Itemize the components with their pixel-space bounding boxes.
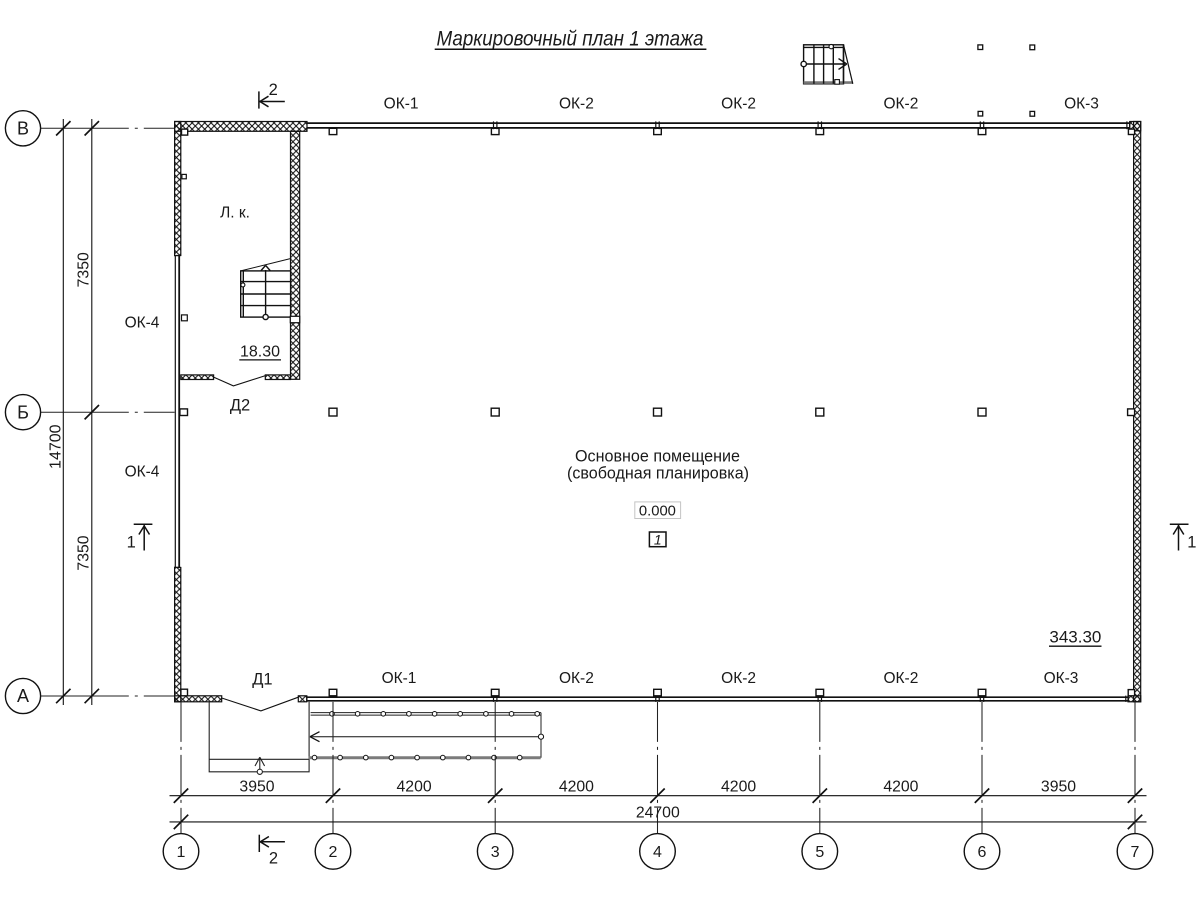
svg-text:7350: 7350 — [76, 535, 93, 570]
svg-text:4200: 4200 — [397, 778, 432, 795]
svg-text:3: 3 — [491, 844, 500, 861]
svg-text:ОК-4: ОК-4 — [125, 464, 160, 481]
svg-text:4200: 4200 — [721, 778, 756, 795]
svg-text:14700: 14700 — [48, 424, 65, 469]
svg-text:ОК-2: ОК-2 — [721, 96, 756, 113]
svg-text:ОК-2: ОК-2 — [883, 96, 918, 113]
svg-text:4: 4 — [653, 844, 662, 861]
svg-text:(свободная планировка): (свободная планировка) — [567, 463, 749, 482]
svg-text:ОК-1: ОК-1 — [384, 96, 419, 113]
svg-text:ОК-2: ОК-2 — [883, 670, 918, 687]
svg-text:3950: 3950 — [1041, 778, 1076, 795]
svg-text:24700: 24700 — [636, 805, 680, 822]
svg-text:Л. к.: Л. к. — [220, 205, 250, 222]
svg-text:ОК-2: ОК-2 — [721, 670, 756, 687]
svg-text:6: 6 — [978, 844, 987, 861]
svg-text:Б: Б — [17, 402, 29, 422]
svg-text:2: 2 — [269, 81, 278, 99]
svg-text:Д2: Д2 — [230, 396, 250, 414]
svg-text:1: 1 — [654, 531, 662, 547]
svg-text:4200: 4200 — [559, 778, 594, 795]
svg-text:ОК-2: ОК-2 — [559, 96, 594, 113]
svg-text:1: 1 — [1187, 533, 1196, 551]
svg-text:7350: 7350 — [76, 252, 93, 287]
svg-text:3950: 3950 — [239, 778, 274, 795]
svg-text:7: 7 — [1131, 844, 1140, 861]
svg-text:18.30: 18.30 — [240, 343, 280, 360]
svg-text:В: В — [17, 119, 29, 139]
svg-text:4200: 4200 — [883, 778, 918, 795]
svg-text:2: 2 — [269, 849, 278, 867]
svg-text:2: 2 — [329, 844, 338, 861]
svg-text:1: 1 — [127, 533, 136, 551]
svg-text:0.000: 0.000 — [639, 503, 676, 519]
svg-text:ОК-3: ОК-3 — [1064, 96, 1099, 113]
svg-text:1: 1 — [177, 844, 186, 861]
svg-text:Д1: Д1 — [252, 670, 272, 688]
svg-text:5: 5 — [815, 844, 824, 861]
svg-text:ОК-2: ОК-2 — [559, 670, 594, 687]
svg-text:343.30: 343.30 — [1049, 627, 1101, 646]
svg-text:ОК-4: ОК-4 — [125, 315, 160, 332]
svg-text:ОК-1: ОК-1 — [382, 670, 417, 687]
svg-text:Маркировочный план 1 этажа: Маркировочный план 1 этажа — [437, 27, 704, 50]
svg-text:А: А — [17, 686, 29, 706]
svg-text:ОК-3: ОК-3 — [1044, 670, 1079, 687]
